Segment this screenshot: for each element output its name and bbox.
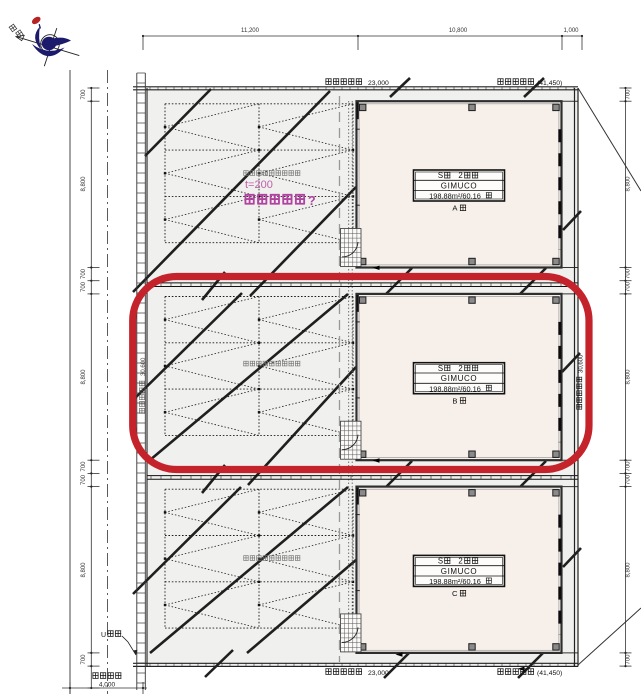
svg-text:C: C	[452, 589, 458, 598]
svg-text:30,600: 30,600	[579, 354, 585, 373]
svg-text:23,000: 23,000	[368, 80, 389, 87]
svg-text:2: 2	[458, 364, 462, 373]
svg-text:?: ?	[308, 194, 316, 208]
svg-text:S: S	[438, 171, 443, 180]
svg-text:700: 700	[81, 461, 87, 472]
svg-text:4,000: 4,000	[99, 682, 116, 689]
svg-text:8,800: 8,800	[81, 369, 87, 385]
svg-text:23,000: 23,000	[368, 670, 389, 677]
svg-text:700: 700	[81, 268, 87, 279]
svg-text:8,800: 8,800	[81, 176, 87, 192]
svg-text:S: S	[438, 364, 443, 373]
svg-text:8,800: 8,800	[626, 369, 632, 385]
svg-text:2: 2	[458, 557, 462, 566]
svg-text:198.88m²/60.16: 198.88m²/60.16	[429, 577, 481, 586]
svg-text:t=200: t=200	[245, 179, 273, 191]
svg-text:198.88m²/60.16: 198.88m²/60.16	[429, 192, 481, 201]
svg-text:700: 700	[626, 461, 632, 472]
svg-text:GIMUCO: GIMUCO	[441, 567, 478, 576]
svg-text:700: 700	[81, 89, 87, 100]
svg-text:(41,450): (41,450)	[537, 80, 562, 87]
svg-text:10,800: 10,800	[449, 28, 468, 34]
svg-text:8,800: 8,800	[81, 562, 87, 578]
svg-text:GIMUCO: GIMUCO	[441, 181, 478, 190]
svg-text:700: 700	[81, 281, 87, 292]
svg-text:198.88m²/60.16: 198.88m²/60.16	[429, 384, 481, 393]
svg-text:S: S	[438, 557, 443, 566]
svg-text:8,800: 8,800	[626, 176, 632, 192]
svg-text:700: 700	[626, 89, 632, 100]
svg-text:11,200: 11,200	[241, 28, 260, 34]
svg-text:700: 700	[81, 654, 87, 665]
svg-text:1,000: 1,000	[563, 28, 579, 34]
svg-text:700: 700	[626, 654, 632, 665]
svg-text:U: U	[101, 632, 106, 639]
svg-text:GIMUCO: GIMUCO	[441, 374, 478, 383]
svg-text:2: 2	[458, 171, 462, 180]
svg-text:8,800: 8,800	[626, 562, 632, 578]
svg-text:700: 700	[81, 474, 87, 485]
svg-text:30,600: 30,600	[141, 357, 147, 376]
svg-text:700: 700	[626, 474, 632, 485]
svg-text:(41,450): (41,450)	[537, 670, 562, 677]
svg-text:700: 700	[626, 268, 632, 279]
svg-text:700: 700	[626, 281, 632, 292]
svg-text:B: B	[452, 396, 457, 405]
